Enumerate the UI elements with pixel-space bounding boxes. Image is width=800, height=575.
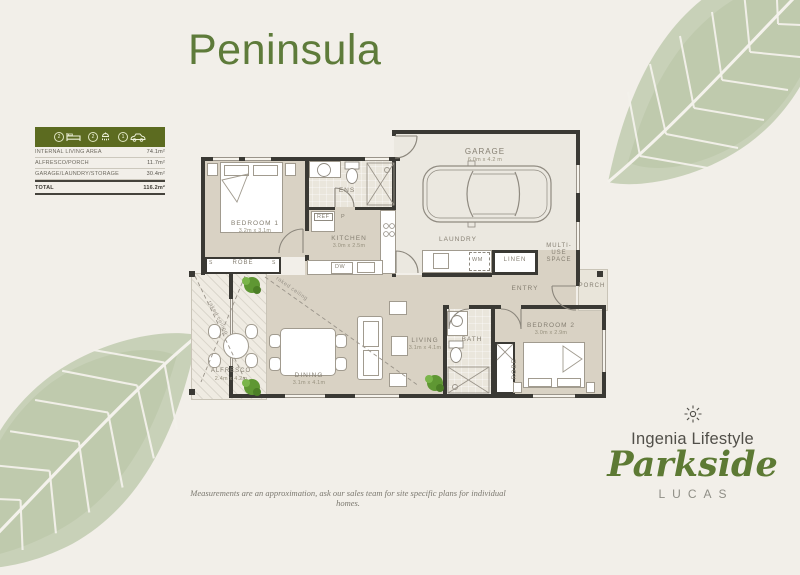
- table-row: GARAGE/LAUNDRY/STORAGE 30.4m²: [35, 169, 165, 180]
- sun-icon: [682, 404, 704, 424]
- robe2-label: ROBE: [512, 358, 520, 379]
- living-label: LIVING 3.1m x 4.1m: [409, 337, 441, 353]
- robe2-shelf-cross: [497, 344, 513, 360]
- table-total-row: TOTAL 116.2m²: [35, 180, 165, 195]
- pantry-label: P: [341, 214, 345, 220]
- bed2-fold: [563, 346, 582, 372]
- bedroom2-label: BEDROOM 2 3.0m x 2.9m: [527, 322, 575, 338]
- cooktop: [384, 224, 395, 237]
- table-row: INTERNAL LIVING AREA 74.1m²: [35, 147, 165, 158]
- bedroom1-label: BEDROOM 1 3.2m x 3.1m: [231, 220, 279, 236]
- disclaimer-text: Measurements are an approximation, ask o…: [178, 488, 518, 508]
- car-topview: [423, 161, 551, 227]
- bathroom-shower: [448, 367, 489, 393]
- bedroom-count-badge: 2: [54, 132, 64, 142]
- total-value: 116.2m²: [143, 185, 165, 191]
- table-header-bar: 2 2 1: [35, 127, 165, 147]
- alfresco-label: ALFRESCO 2.4m x 4.2m: [211, 368, 251, 383]
- plant: [242, 277, 261, 294]
- bed1-fold: [222, 174, 248, 202]
- garage-label: GARAGE 6.0m x 4.2 m: [465, 147, 505, 165]
- car-icon: [130, 132, 146, 142]
- table-row: ALFRESCO/PORCH 11.7m²: [35, 158, 165, 169]
- robe1-label: ROBE: [232, 260, 253, 268]
- row-label: ALFRESCO/PORCH: [35, 160, 89, 166]
- laundry-label: LAUNDRY: [439, 236, 477, 244]
- shower-icon: [100, 132, 111, 142]
- dining-label: DINING 3.1m x 4.1m: [293, 372, 325, 388]
- dw-label: DW: [335, 264, 345, 270]
- sliding-door-mark: S: [209, 260, 213, 266]
- brand-logo: Ingenia Lifestyle Parkside LUCAS: [600, 404, 785, 501]
- multiuse-label: MULTI-USE SPACE: [539, 243, 579, 264]
- leaf-top-right-decoration: [598, 0, 800, 192]
- bath-label: BATH: [462, 336, 483, 344]
- bed-icon: [66, 132, 81, 142]
- row-label: INTERNAL LIVING AREA: [35, 149, 102, 155]
- linen-label: LINEN: [504, 257, 527, 265]
- ensuite-fixtures: [318, 162, 360, 184]
- ref-label: REF: [314, 213, 333, 221]
- ens-label: ENS: [339, 187, 355, 195]
- entry-label: ENTRY: [512, 285, 539, 293]
- garage-count-group: 1: [118, 132, 146, 142]
- ensuite-shower: [367, 163, 394, 205]
- kitchen-label: KITCHEN 3.0m x 2.5m: [331, 235, 367, 251]
- brochure-page: { "page": { "title": "Peninsula", "discl…: [0, 0, 800, 533]
- total-label: TOTAL: [35, 185, 54, 191]
- row-value: 74.1m²: [147, 149, 165, 155]
- row-value: 11.7m²: [147, 160, 165, 166]
- wm-label: WM: [472, 257, 483, 263]
- car-count-badge: 1: [118, 132, 128, 142]
- row-label: GARAGE/LAUNDRY/STORAGE: [35, 171, 119, 177]
- bedrooms-count-group: 2: [54, 132, 81, 142]
- suburb-name: LUCAS: [600, 487, 785, 501]
- area-summary-table: 2 2 1 INTERNAL LIVING AREA 74.1m² ALFRES…: [35, 127, 165, 195]
- sliding-door-mark: S: [272, 260, 276, 266]
- community-name: Parkside: [600, 447, 785, 484]
- plant: [425, 375, 444, 392]
- porch-label: PORCH: [579, 283, 606, 291]
- leaf-bottom-left-decoration: [0, 325, 208, 575]
- page-title: Peninsula: [188, 26, 381, 75]
- bathrooms-count-group: 2: [88, 132, 111, 142]
- floor-plan: GARAGE 6.0m x 4.2 m BEDROOM 1 3.2m x 3.1…: [185, 130, 610, 402]
- row-value: 30.4m²: [147, 171, 165, 177]
- bathroom-count-badge: 2: [88, 132, 98, 142]
